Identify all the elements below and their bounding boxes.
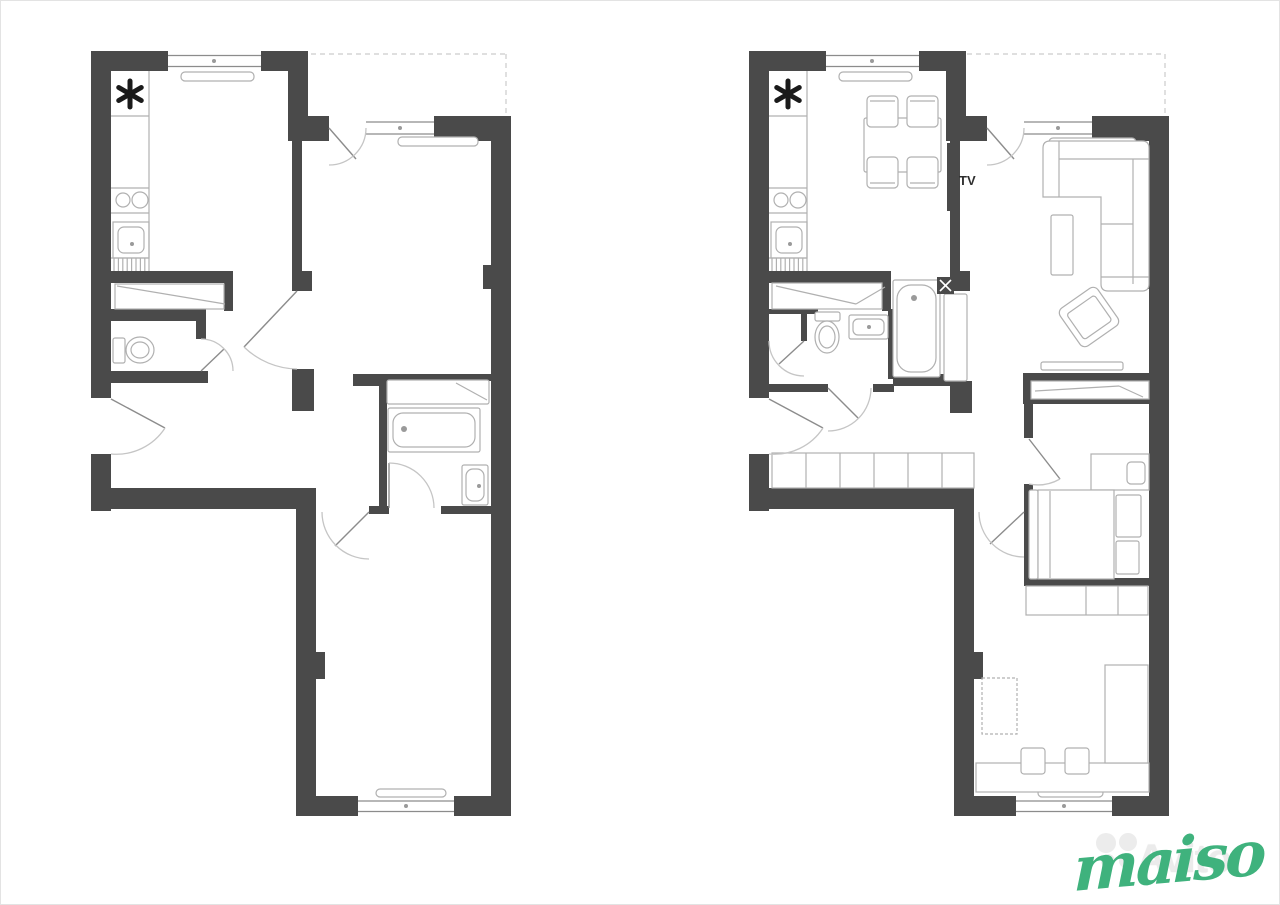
furniture-outline	[115, 284, 224, 309]
fixture-dot	[1062, 804, 1066, 808]
furniture-outline	[398, 137, 478, 146]
stove-burner	[116, 193, 130, 207]
furniture-outline	[376, 789, 446, 797]
wall-segment	[919, 51, 966, 71]
wall-segment	[491, 141, 511, 816]
floorplan-image: TV Avito maiso	[0, 0, 1280, 905]
furniture-outline	[1021, 748, 1045, 774]
wall-segment	[111, 371, 208, 383]
furniture-outline	[387, 380, 489, 404]
wall-segment	[1112, 796, 1169, 816]
door-swing-arc	[111, 428, 165, 454]
stove-burner	[132, 192, 148, 208]
wall-segment	[769, 384, 828, 392]
toilet-bowl	[131, 342, 149, 358]
door-leaf	[779, 341, 804, 364]
furniture-outline	[113, 338, 125, 363]
wall-segment	[483, 265, 491, 289]
furniture-outline	[772, 283, 882, 309]
furniture-outline	[1041, 362, 1123, 370]
fixture-dot	[404, 804, 408, 808]
wall-segment	[296, 796, 358, 816]
furniture-outline	[181, 72, 254, 81]
furniture-outline	[772, 453, 974, 488]
furniture-outline	[1116, 495, 1141, 537]
furniture-outline	[976, 763, 1149, 792]
floor-plan-after: TV	[749, 51, 1169, 816]
wall-segment	[224, 271, 233, 311]
furniture-outline	[944, 294, 967, 381]
wall-segment	[91, 51, 111, 398]
furniture-outline	[1029, 490, 1038, 579]
wall-segment	[946, 116, 987, 141]
dashed-item-outline	[982, 678, 1017, 734]
door-leaf	[111, 399, 165, 428]
fixture-dot	[212, 59, 216, 63]
fixture-dot	[870, 59, 874, 63]
wall-segment	[353, 374, 383, 386]
wall-segment	[441, 506, 491, 514]
fixture-dot	[1056, 126, 1060, 130]
wall-segment	[296, 488, 316, 816]
door-swing-arc	[1029, 479, 1060, 485]
door-leaf	[1029, 439, 1060, 479]
furniture-outline	[776, 227, 802, 253]
door-leaf	[329, 128, 356, 159]
maiso-script-text: maiso	[1073, 816, 1264, 905]
wall-segment	[954, 796, 1016, 816]
wall-segment	[292, 369, 314, 411]
door-leaf	[769, 399, 823, 428]
furniture-outline	[1026, 586, 1148, 615]
fixture-dot	[911, 295, 917, 301]
wall-segment	[882, 271, 891, 311]
wall-segment	[292, 271, 312, 291]
wall-segment	[111, 271, 233, 283]
wall-segment	[91, 488, 299, 509]
stove-burner	[774, 193, 788, 207]
wall-segment	[1024, 404, 1033, 438]
door-swing-arc	[769, 428, 823, 454]
tv-label: TV	[959, 173, 976, 188]
door-swing-arc	[244, 347, 297, 369]
wall-segment	[261, 51, 308, 71]
wall-segment	[769, 309, 818, 314]
fixture-dot	[788, 242, 792, 246]
wall-segment	[454, 796, 511, 816]
dark-fixture	[947, 143, 955, 211]
wall-segment	[1092, 116, 1169, 141]
furniture-outline	[466, 469, 484, 501]
door-swing-arc	[389, 463, 434, 508]
wall-segment	[196, 309, 206, 339]
fixture-dot	[477, 484, 481, 488]
wall-segment	[288, 116, 329, 141]
door-leaf	[335, 512, 369, 546]
wall-segment	[1023, 373, 1149, 381]
wall-segment	[954, 488, 974, 816]
fixture-dot	[401, 426, 407, 432]
fixture-dot	[867, 325, 871, 329]
floor-plan-before	[91, 51, 511, 816]
wall-segment	[316, 652, 325, 679]
door-leaf	[990, 512, 1024, 544]
furniture-outline	[1051, 215, 1073, 275]
wall-segment	[369, 506, 389, 514]
wall-segment	[749, 488, 957, 509]
furniture-outline	[815, 312, 840, 321]
wall-segment	[379, 379, 387, 506]
fixture-dot	[130, 242, 134, 246]
toilet-bowl	[819, 326, 835, 348]
wall-segment	[769, 271, 891, 283]
wall-segment	[1149, 141, 1169, 816]
wall-segment	[950, 381, 972, 413]
wall-segment	[292, 141, 302, 273]
floor-plans-svg: TV	[1, 1, 1280, 905]
wall-segment	[974, 652, 983, 679]
wall-segment	[801, 312, 807, 341]
wall-segment	[873, 384, 894, 392]
door-leaf	[987, 128, 1014, 159]
armchair	[1057, 285, 1121, 349]
wall-segment	[111, 309, 206, 321]
door-leaf	[201, 349, 224, 371]
furniture-outline	[118, 227, 144, 253]
furniture-outline	[1127, 462, 1145, 484]
furniture-outline	[1116, 541, 1139, 574]
furniture-outline	[1065, 748, 1089, 774]
fixture-dot	[398, 126, 402, 130]
furniture-outline	[1105, 665, 1148, 763]
door-leaf	[828, 388, 858, 418]
furniture-outline	[839, 72, 912, 81]
stove-burner	[790, 192, 806, 208]
door-leaf	[244, 291, 297, 347]
wall-segment	[749, 51, 769, 398]
